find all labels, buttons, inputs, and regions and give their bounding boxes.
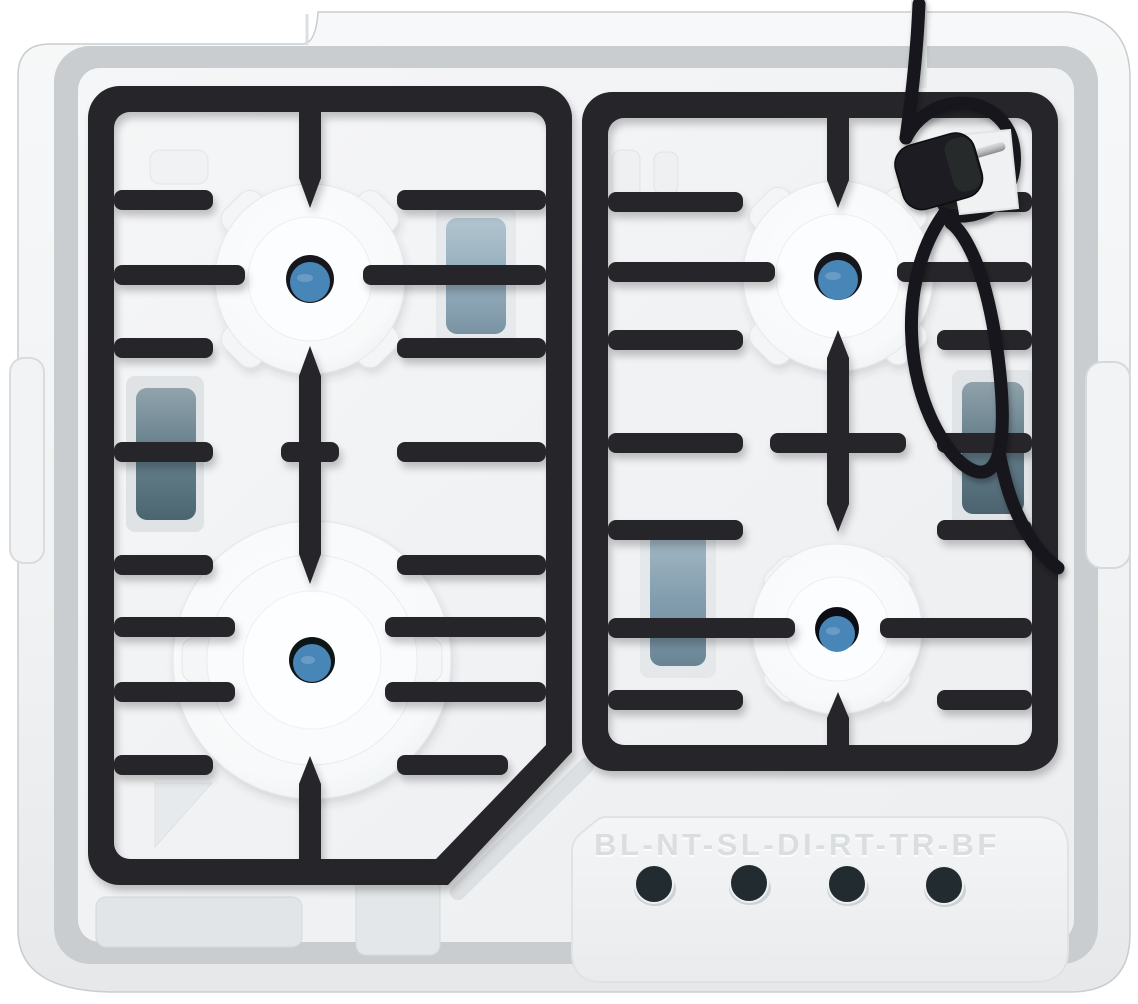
pocket-2	[356, 877, 440, 955]
valve-hole-4	[925, 866, 963, 904]
foam-bump-1	[150, 150, 208, 184]
window-center-right	[640, 520, 716, 678]
foam-bump-2	[612, 150, 640, 198]
hob-photo-svg: BL-NT-SL-DI-RT-TR-BF BL-NT-SL-DI-RT-TR-B…	[0, 0, 1138, 1004]
model-code-panel: BL-NT-SL-DI-RT-TR-BF BL-NT-SL-DI-RT-TR-B…	[572, 817, 1068, 982]
scene: BL-NT-SL-DI-RT-TR-BF BL-NT-SL-DI-RT-TR-B…	[0, 0, 1138, 1004]
embossed-model-code: BL-NT-SL-DI-RT-TR-BF	[594, 827, 1000, 862]
burner-cap-top-right	[818, 260, 858, 300]
rim-strip-right	[1086, 362, 1130, 568]
foam-bump-3	[654, 152, 678, 194]
valve-hole-1	[635, 865, 673, 903]
rim-strip-left	[10, 358, 44, 563]
burner-cap-top-left	[290, 262, 330, 302]
valve-hole-3	[828, 865, 866, 903]
valve-hole-2	[730, 864, 768, 902]
pocket-1	[96, 897, 302, 947]
